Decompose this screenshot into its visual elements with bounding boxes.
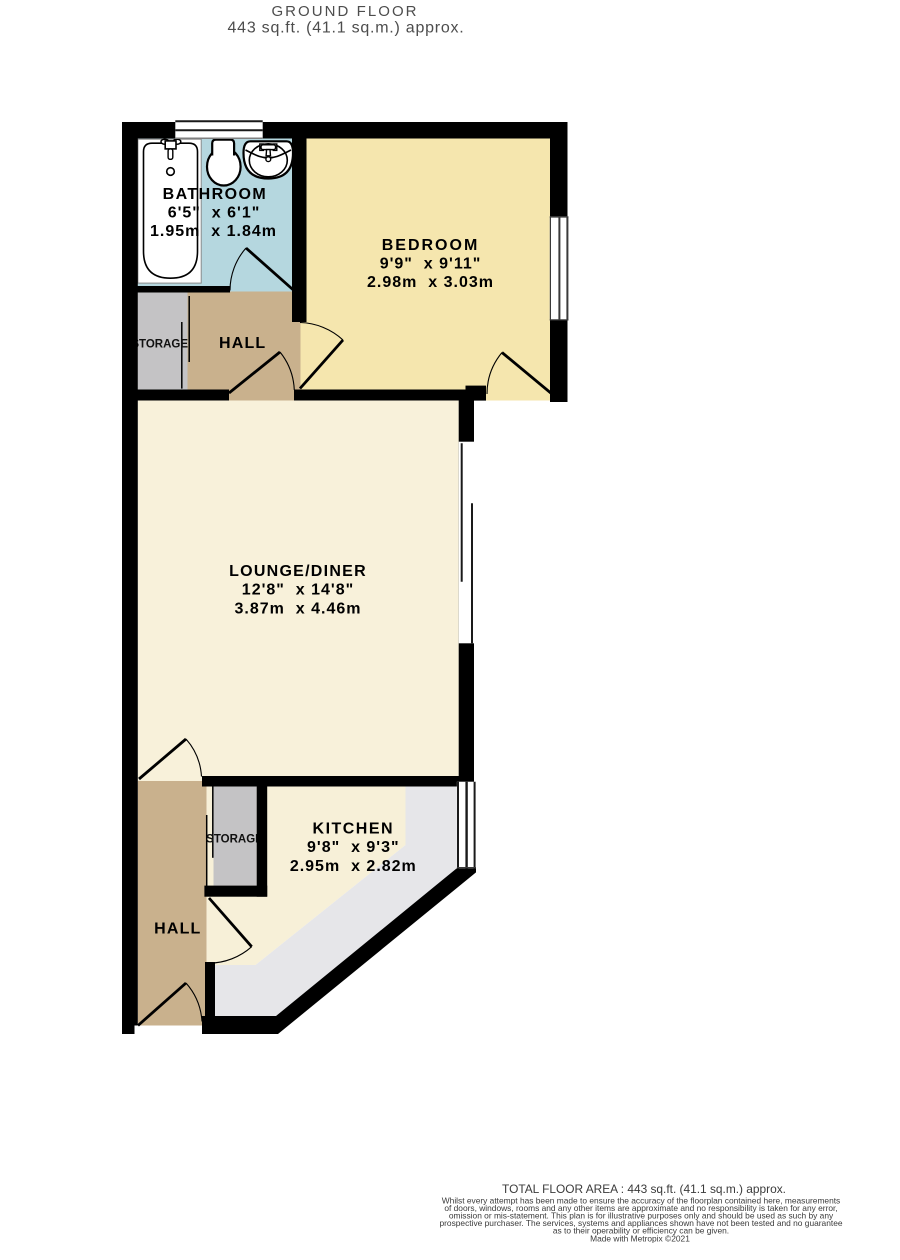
svg-text:STORAGE: STORAGE (206, 833, 263, 845)
svg-text:12'8" x 14'8": 12'8" x 14'8" (242, 581, 354, 598)
svg-text:BEDROOM: BEDROOM (382, 237, 480, 254)
svg-text:KITCHEN: KITCHEN (313, 820, 394, 837)
svg-text:1.95m x 1.84m: 1.95m x 1.84m (150, 223, 277, 240)
svg-text:HALL: HALL (219, 335, 266, 352)
svg-text:STORAGE: STORAGE (131, 339, 188, 351)
svg-text:TOTAL FLOOR AREA : 443 sq.ft.: TOTAL FLOOR AREA : 443 sq.ft. (41.1 sq.m… (502, 1182, 786, 1196)
svg-text:HALL: HALL (154, 920, 201, 937)
svg-text:Made with Metropix ©2021: Made with Metropix ©2021 (590, 1234, 690, 1244)
svg-text:LOUNGE/DINER: LOUNGE/DINER (229, 563, 367, 580)
svg-text:2.95m x 2.82m: 2.95m x 2.82m (290, 858, 417, 875)
svg-text:9'8" x 9'3": 9'8" x 9'3" (307, 839, 400, 856)
svg-text:9'9" x 9'11": 9'9" x 9'11" (380, 255, 482, 272)
svg-text:2.98m x 3.03m: 2.98m x 3.03m (367, 274, 494, 291)
svg-text:443 sq.ft. (41.1 sq.m.) approx: 443 sq.ft. (41.1 sq.m.) approx. (228, 20, 465, 37)
svg-text:3.87m x 4.46m: 3.87m x 4.46m (235, 600, 362, 617)
svg-text:6'5" x 6'1": 6'5" x 6'1" (168, 204, 261, 221)
svg-text:GROUND FLOOR: GROUND FLOOR (271, 3, 418, 20)
svg-text:BATHROOM: BATHROOM (163, 186, 268, 203)
